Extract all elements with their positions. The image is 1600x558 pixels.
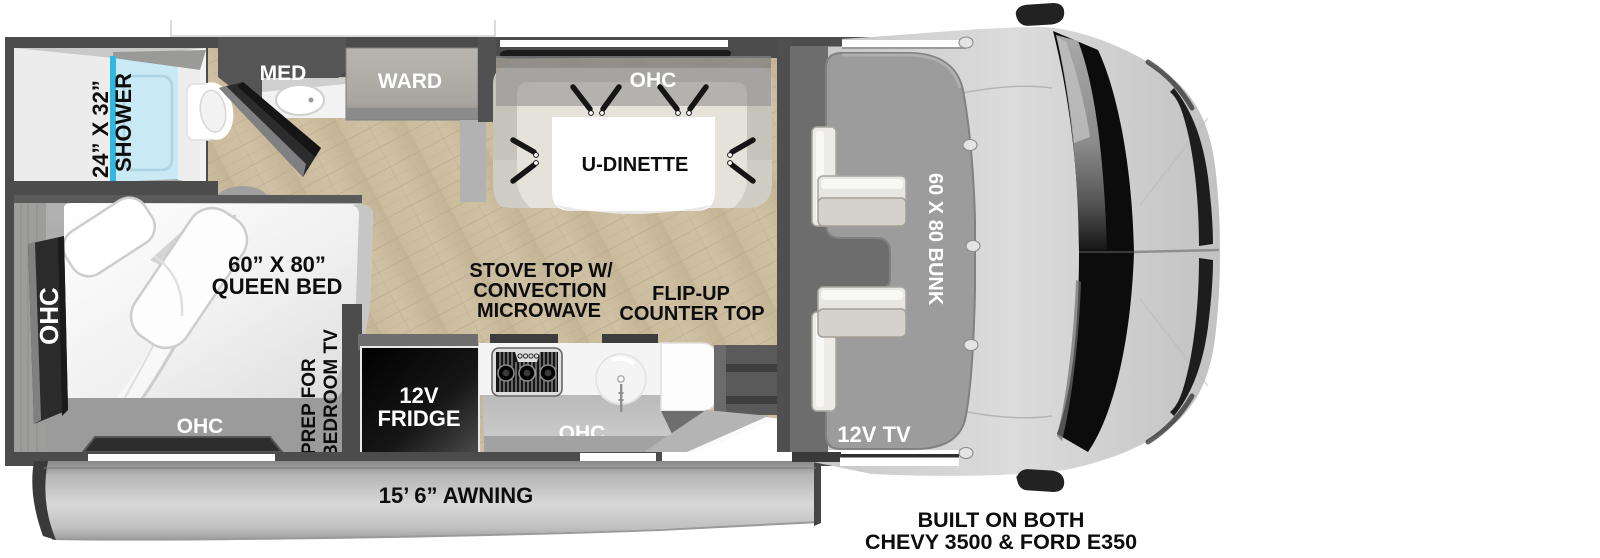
svg-text:BEDROOM TV: BEDROOM TV (321, 329, 342, 458)
svg-text:MED: MED (260, 62, 307, 85)
svg-text:U-DINETTE: U-DINETTE (582, 154, 689, 176)
svg-text:24” X 32”: 24” X 32” (88, 80, 113, 178)
svg-text:COUNTER TOP: COUNTER TOP (619, 303, 764, 325)
svg-text:OHC: OHC (34, 287, 64, 345)
svg-text:FRIDGE: FRIDGE (377, 406, 460, 431)
svg-text:CHEVY 3500 & FORD E350: CHEVY 3500 & FORD E350 (865, 530, 1137, 554)
svg-text:OHC: OHC (177, 415, 224, 438)
svg-text:SHOWER: SHOWER (111, 73, 136, 172)
svg-text:MICROWAVE: MICROWAVE (477, 300, 601, 322)
svg-text:12V: 12V (399, 383, 438, 408)
svg-text:12V TV: 12V TV (837, 422, 911, 447)
svg-text:WARD: WARD (378, 70, 442, 93)
svg-text:OHC: OHC (630, 69, 677, 92)
svg-text:15’ 6” AWNING: 15’ 6” AWNING (379, 483, 533, 508)
svg-text:QUEEN BED: QUEEN BED (212, 274, 343, 299)
svg-text:BUILT ON BOTH: BUILT ON BOTH (918, 508, 1085, 532)
svg-text:60 X 80 BUNK: 60 X 80 BUNK (924, 173, 946, 306)
svg-text:PREP FOR: PREP FOR (299, 358, 320, 455)
svg-text:STOVE TOP W/: STOVE TOP W/ (469, 260, 613, 282)
svg-text:FLIP-UP: FLIP-UP (652, 283, 730, 305)
svg-text:CONVECTION: CONVECTION (473, 280, 606, 302)
